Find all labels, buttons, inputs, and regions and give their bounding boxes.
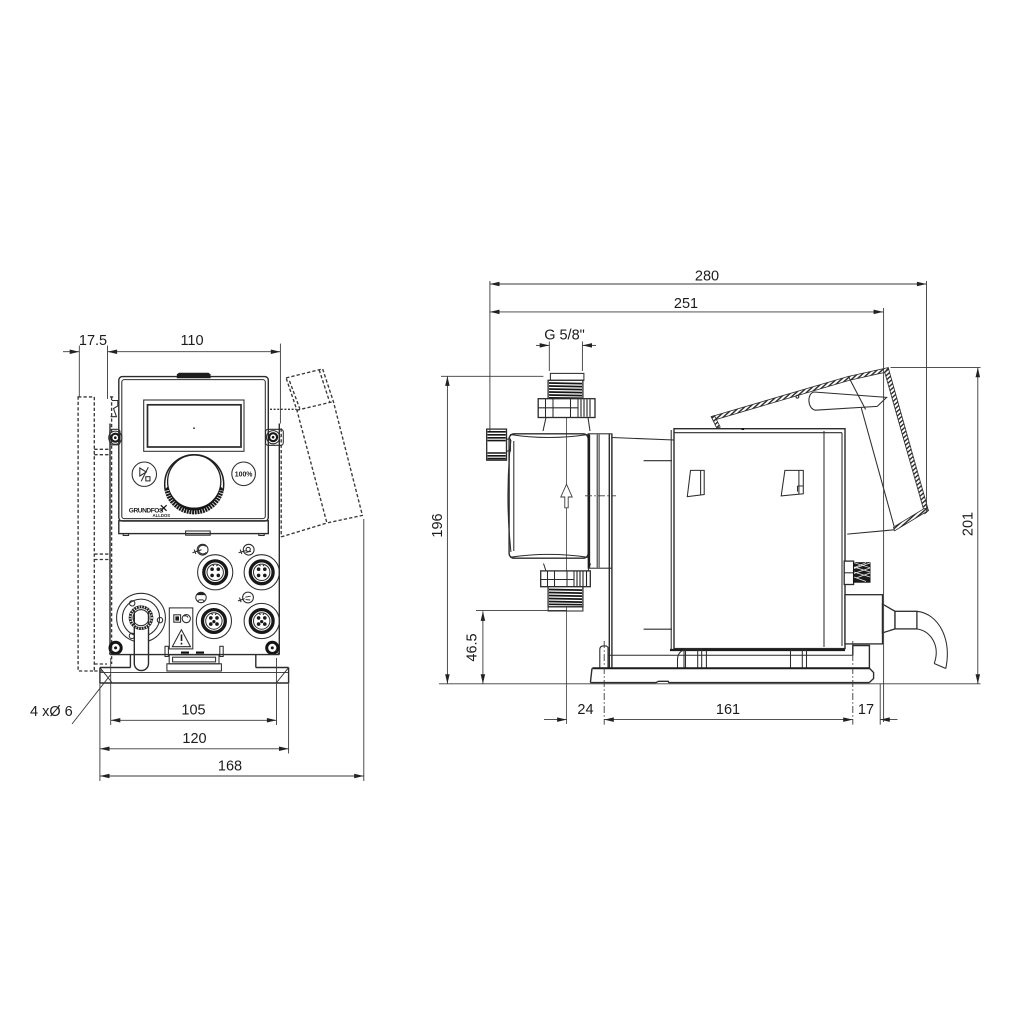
svg-text:196: 196 [430, 513, 446, 537]
svg-text:168: 168 [218, 758, 242, 774]
svg-text:17.5: 17.5 [79, 333, 107, 349]
svg-text:161: 161 [716, 702, 740, 718]
svg-text:105: 105 [181, 703, 205, 719]
svg-text:201: 201 [961, 512, 977, 536]
svg-text:ALLDOS: ALLDOS [153, 513, 171, 518]
svg-text:46.5: 46.5 [465, 633, 481, 661]
svg-text:110: 110 [180, 333, 203, 349]
svg-text:4 xØ 6: 4 xØ 6 [30, 704, 73, 720]
svg-text:280: 280 [695, 268, 719, 284]
svg-text:17: 17 [858, 702, 874, 718]
svg-text:120: 120 [182, 731, 206, 747]
svg-text:100%: 100% [235, 471, 253, 478]
svg-text:251: 251 [674, 296, 698, 312]
svg-text:24: 24 [577, 702, 593, 718]
svg-text:G 5/8": G 5/8" [544, 327, 585, 343]
